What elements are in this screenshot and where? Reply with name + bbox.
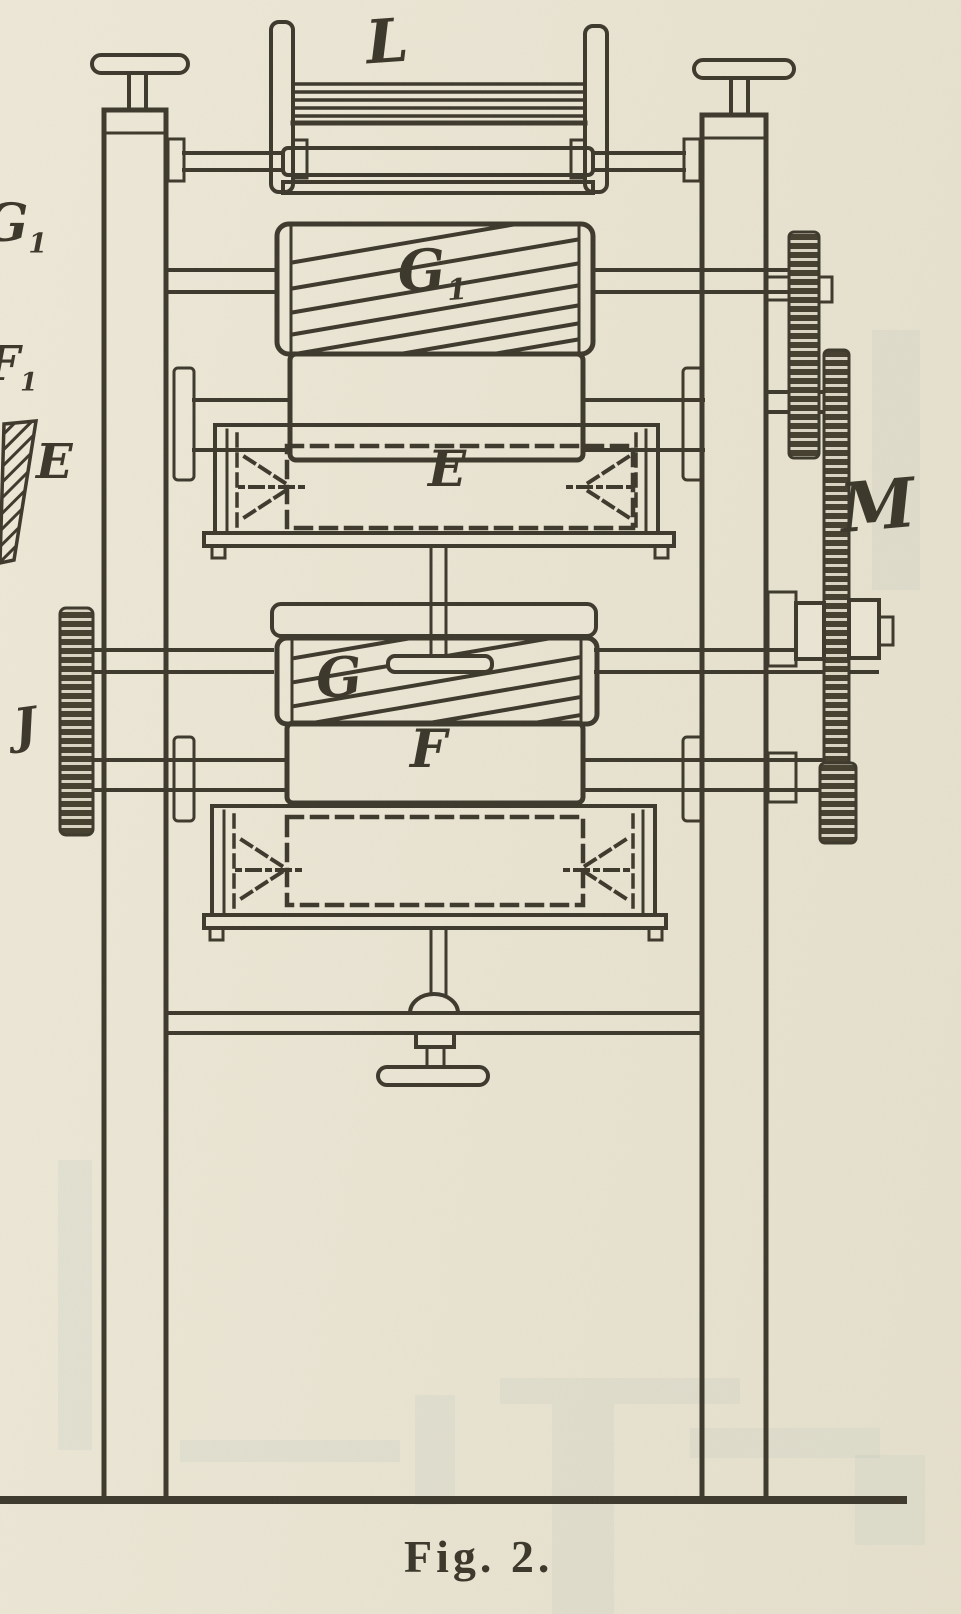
label-top-frame: L [364, 11, 410, 74]
label-margin-roller-f-sub: 1 [20, 368, 37, 397]
figure-caption: Fig. 2. [404, 1534, 553, 1580]
scanned-page: L G1 E G F M J G1 F1 E Fig. 2. [0, 0, 961, 1614]
label-margin-tray: E [36, 438, 73, 486]
label-margin-roller-f-main: F [0, 336, 20, 392]
label-upper-fluted-roller-sub: 1 [446, 272, 469, 307]
label-upper-fluted-roller: G1 [396, 240, 468, 309]
label-middle-fluted-roller: G [314, 648, 365, 706]
machine-drawing [0, 0, 961, 1614]
label-lower-roller: F [410, 724, 447, 776]
label-margin-roller-g: G1 [0, 198, 47, 257]
label-upper-fluted-roller-main: G [395, 236, 447, 305]
label-margin-roller-g-sub: 1 [28, 228, 47, 259]
label-margin-roller-g-main: G [0, 193, 28, 254]
label-right-gear-train: M [837, 469, 918, 543]
label-margin-roller-f: F1 [0, 340, 37, 396]
label-upper-tray: E [428, 444, 466, 494]
paper-grain [0, 0, 961, 1614]
